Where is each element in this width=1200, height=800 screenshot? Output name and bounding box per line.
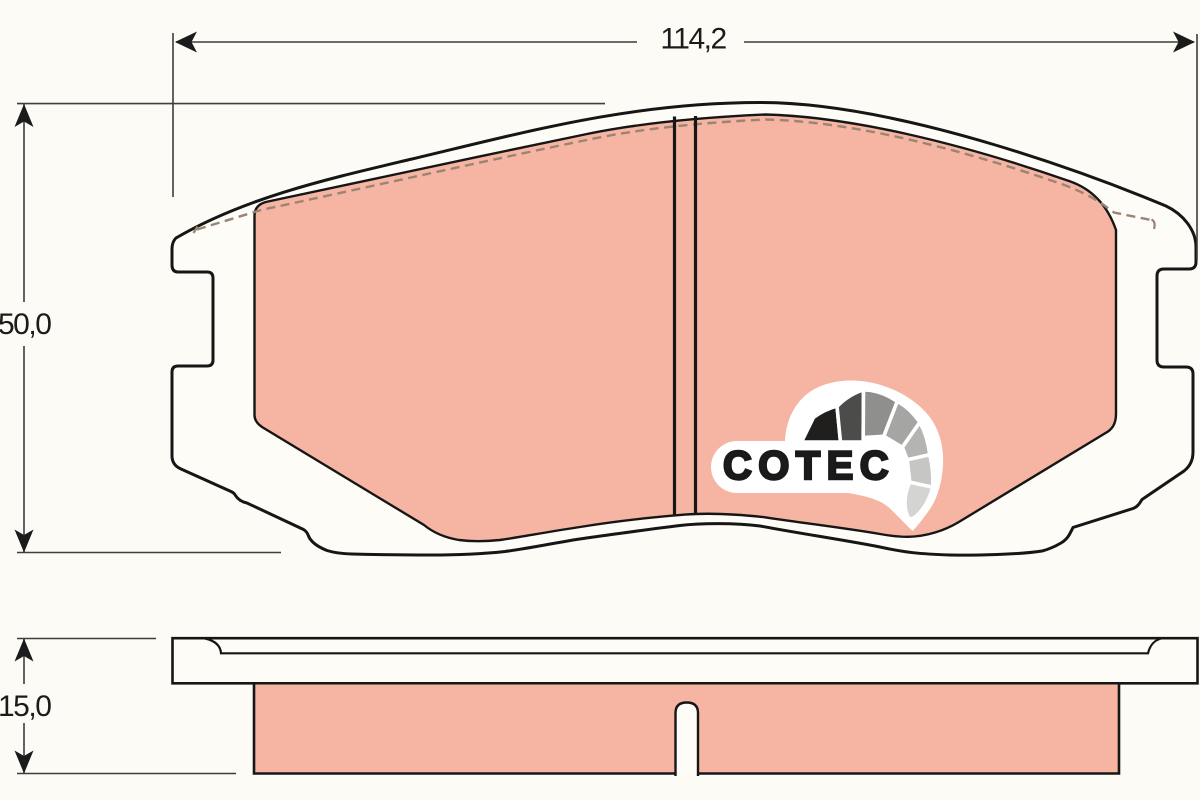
svg-text:114,2: 114,2	[660, 23, 726, 56]
svg-text:50,0: 50,0	[0, 308, 51, 341]
svg-text:COTEC: COTEC	[723, 444, 895, 488]
svg-text:15,0: 15,0	[0, 690, 51, 723]
